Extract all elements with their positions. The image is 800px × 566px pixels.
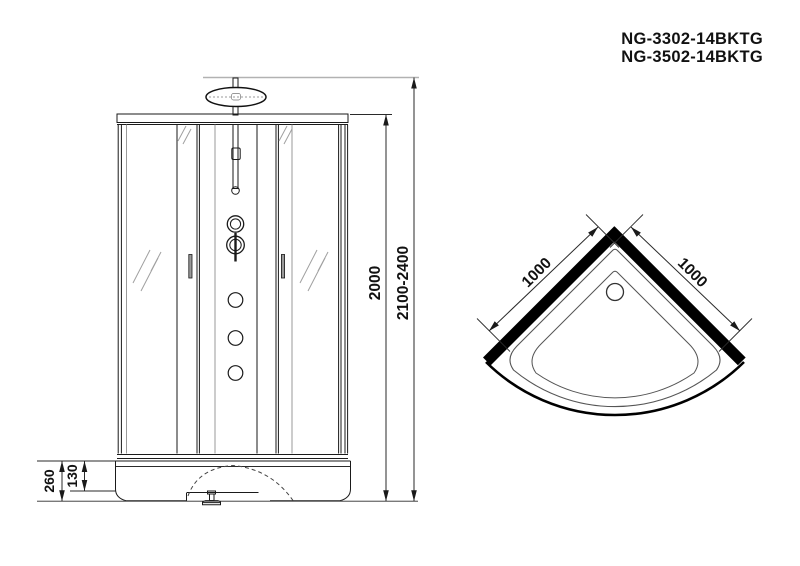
product-code-2: NG-3502-14BKTG (621, 48, 763, 66)
dimension-cabin-2000: 2000 (350, 115, 392, 502)
dim-260-label: 260 (41, 469, 57, 493)
shower-pipe (206, 78, 266, 115)
tray-base (116, 461, 351, 505)
dim-130-label: 130 (64, 464, 80, 488)
dim-2100-2400-label: 2100-2400 (395, 246, 412, 320)
top-view: 1000 1000 (477, 215, 752, 415)
technical-drawing-page: NG-3302-14BKTG NG-3502-14BKTG (0, 0, 800, 566)
body-jet-icon (228, 293, 243, 308)
shower-cabin-diagram: NG-3302-14BKTG NG-3502-14BKTG (0, 0, 800, 566)
dim-2000-label: 2000 (367, 266, 384, 300)
product-code-1: NG-3302-14BKTG (621, 30, 763, 48)
front-view: 260 130 2000 2100-2400 (37, 78, 419, 505)
body-jet-icon (228, 331, 243, 346)
hidden-tray-arch (188, 466, 293, 501)
drain-icon (607, 284, 624, 301)
dimension-tray-130: 130 (64, 461, 87, 491)
product-codes: NG-3302-14BKTG NG-3502-14BKTG (621, 30, 763, 66)
adjustable-foot-icon (203, 491, 221, 505)
body-jet-icon (228, 366, 243, 381)
slide-rail (233, 125, 238, 189)
diverter-knob-icon (227, 216, 243, 232)
shower-column (227, 125, 245, 381)
glass-reflection-hatches (133, 126, 328, 291)
dimension-total-2100-2400: 2100-2400 (395, 78, 417, 502)
door-handle-right (281, 255, 284, 279)
door-handle-left (189, 255, 192, 279)
